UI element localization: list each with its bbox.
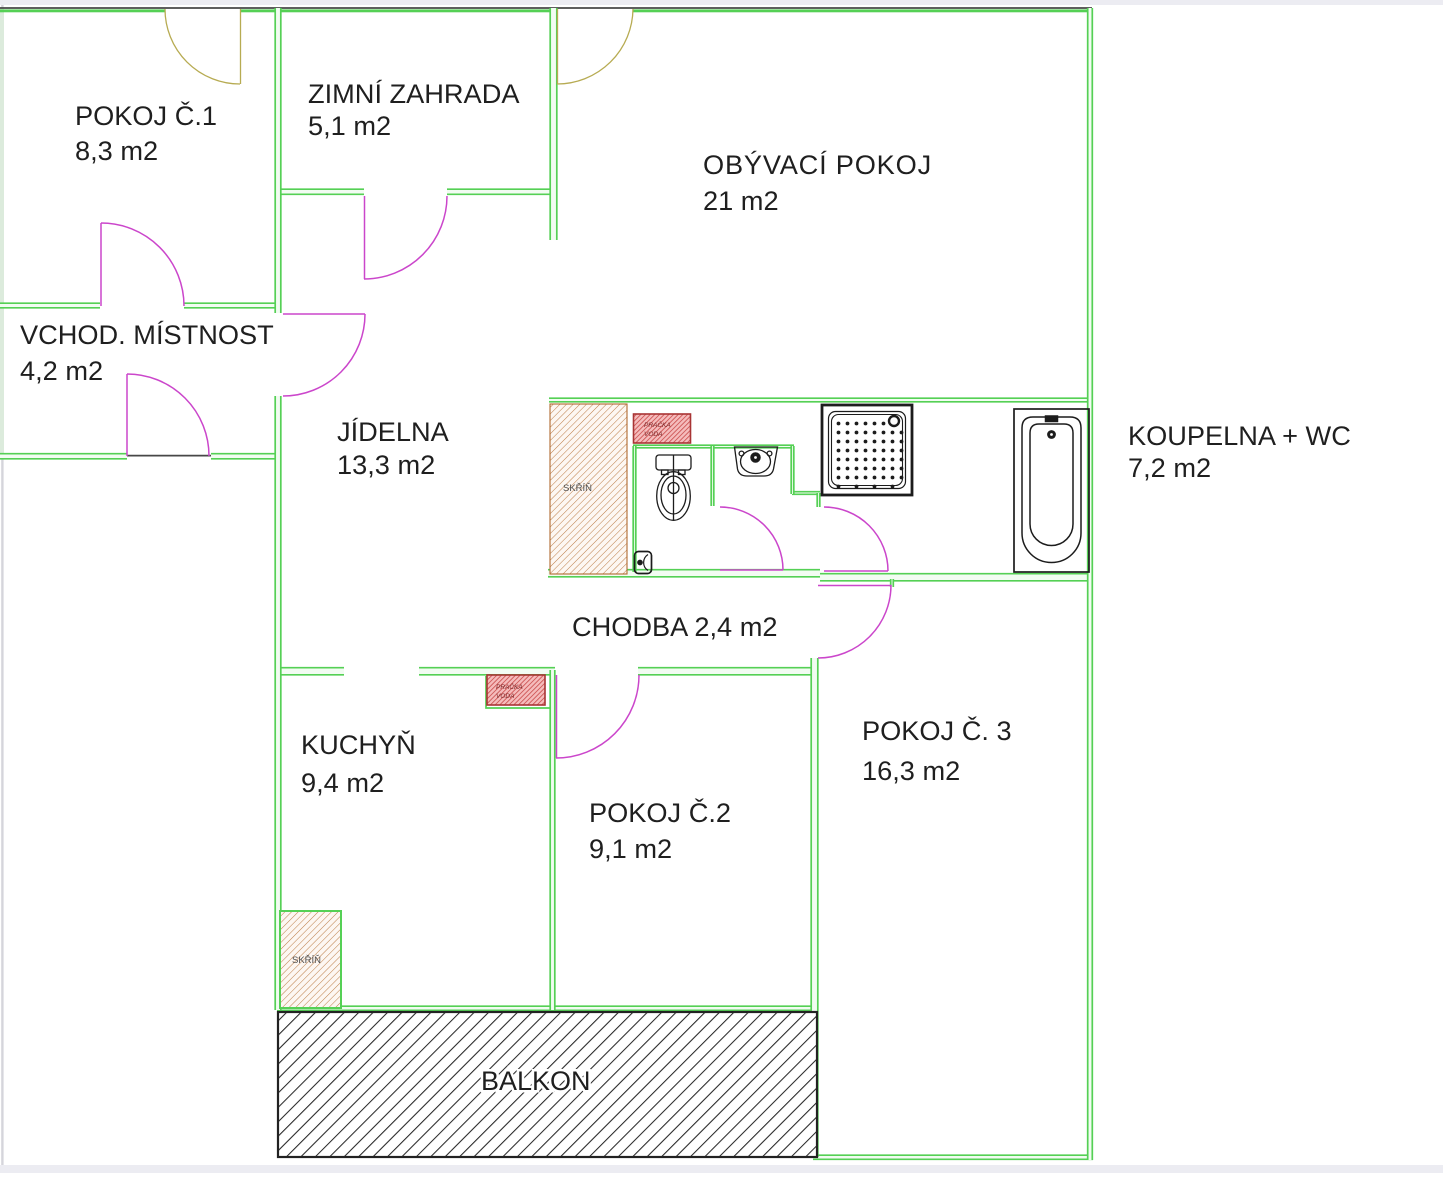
svg-text:VODA: VODA <box>496 693 514 700</box>
svg-text:SKŘÍŇ: SKŘÍŇ <box>563 483 592 494</box>
svg-text:PRAČKA: PRAČKA <box>496 682 523 691</box>
svg-text:POKOJ Č.1: POKOJ Č.1 <box>75 100 217 131</box>
svg-text:ZIMNÍ ZAHRADA: ZIMNÍ ZAHRADA <box>308 78 520 109</box>
svg-text:4,2 m2: 4,2 m2 <box>20 355 103 386</box>
svg-text:13,3 m2: 13,3 m2 <box>337 449 435 480</box>
svg-text:5,1 m2: 5,1 m2 <box>308 110 391 141</box>
svg-text:KUCHYŇ: KUCHYŇ <box>301 729 416 760</box>
svg-text:JÍDELNA: JÍDELNA <box>337 416 450 447</box>
svg-text:KOUPELNA + WC: KOUPELNA + WC <box>1128 420 1351 451</box>
svg-text:POKOJ Č.2: POKOJ Č.2 <box>589 797 731 828</box>
svg-text:CHODBA 2,4 m2: CHODBA 2,4 m2 <box>572 611 778 642</box>
svg-text:9,4 m2: 9,4 m2 <box>301 767 384 798</box>
svg-text:PRAČKA: PRAČKA <box>644 420 671 429</box>
svg-text:16,3 m2: 16,3 m2 <box>862 755 960 786</box>
svg-text:BALKON: BALKON <box>481 1066 591 1096</box>
svg-text:8,3 m2: 8,3 m2 <box>75 135 158 166</box>
svg-text:VODA: VODA <box>644 431 662 438</box>
svg-text:POKOJ Č. 3: POKOJ Č. 3 <box>862 715 1012 746</box>
svg-text:OBÝVACÍ POKOJ: OBÝVACÍ POKOJ <box>703 149 932 180</box>
svg-text:VCHOD. MÍSTNOST: VCHOD. MÍSTNOST <box>20 319 274 350</box>
svg-text:7,2 m2: 7,2 m2 <box>1128 452 1211 483</box>
svg-text:9,1 m2: 9,1 m2 <box>589 833 672 864</box>
svg-text:21 m2: 21 m2 <box>703 185 779 216</box>
svg-text:SKŘÍŇ: SKŘÍŇ <box>292 955 321 966</box>
